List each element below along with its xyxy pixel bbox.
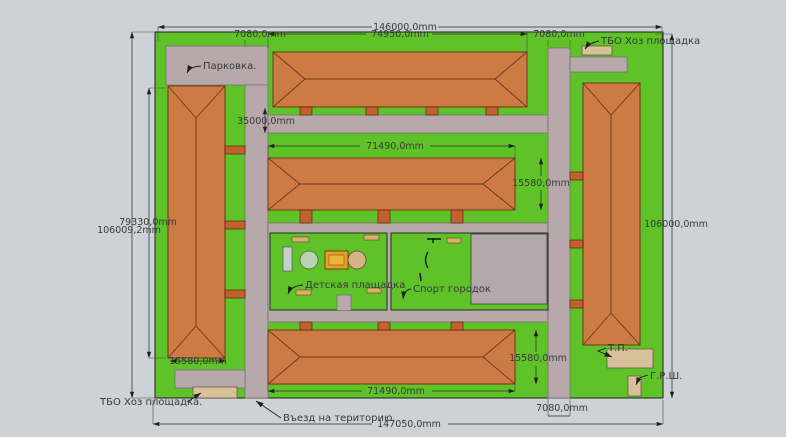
label-sports: Спорт городок [413, 284, 491, 295]
sand-circle [348, 251, 366, 269]
dim-mid-building-length: 71490,0mm [366, 141, 424, 152]
exercise-post [420, 273, 421, 281]
entrance-stub [300, 210, 312, 223]
bench [292, 237, 309, 242]
entrance-stub [570, 172, 583, 180]
dim-top-building-length: 74950,0mm [371, 29, 429, 40]
bottom-left-road-stub [175, 370, 245, 388]
entrance-stub [366, 107, 378, 115]
upper-cross-road [268, 115, 548, 133]
playground-block-notch [337, 295, 351, 311]
entrance-stub [300, 107, 312, 115]
label-parking: Парковка. [203, 61, 256, 72]
entrance-stub [486, 107, 498, 115]
entrance-stub [570, 300, 583, 308]
dim-road-top-right: 7080,0mm [533, 29, 585, 40]
building-right [583, 83, 640, 345]
dim-site-height-right: 106000,0mm [644, 219, 708, 230]
entrance-stub [426, 107, 438, 115]
entrance-stub [451, 322, 463, 330]
play-circle [300, 251, 318, 269]
bench [447, 238, 461, 243]
playground-block [270, 233, 387, 310]
dim-road-main: 35000,0mm [237, 116, 295, 127]
dim-bottom-building-length: 71490,0mm [367, 386, 425, 397]
entrance-stub [378, 210, 390, 223]
label-tbo-bottom: ТБО Хоз площадка. [99, 397, 202, 408]
entrance-stub [225, 146, 245, 154]
entrance-stub [378, 322, 390, 330]
entrance-stub [225, 290, 245, 298]
sandbox-inner [329, 255, 344, 265]
dim-road-top-left: 7080,0mm [234, 29, 286, 40]
building-bottom [268, 330, 515, 384]
building-top [273, 52, 527, 107]
label-playground: Детская плащадка [305, 280, 405, 291]
dim-site-height-left: 106009,2mm [97, 225, 161, 236]
entrance-stub [225, 221, 245, 229]
main-vertical-road [245, 85, 268, 398]
bench [364, 235, 379, 240]
right-vertical-road [548, 48, 570, 398]
dim-left-building-width: 15580,0mm [169, 356, 227, 367]
label-grsh: Г.Р.Ш. [650, 371, 682, 382]
entrance-stub [300, 322, 312, 330]
dim-mid-building-width: 15580,0mm [512, 178, 570, 189]
dim-bottom-building-width: 15580,0mm [509, 353, 567, 364]
dim-road-bottom-right: 7080,0mm [536, 403, 588, 414]
entrance-stub [451, 210, 463, 223]
play-panel [283, 247, 292, 271]
top-right-road-stub [570, 57, 627, 72]
entrance-stub [570, 240, 583, 248]
label-entrance: Въезд на територию. [283, 413, 396, 424]
site-plan-canvas: 146000,0mm 74950,0mm 7080,0mm 7080,0mm 3… [0, 0, 786, 437]
site-plan-drawing: 146000,0mm 74950,0mm 7080,0mm 7080,0mm 3… [0, 0, 786, 437]
building-middle [268, 158, 515, 210]
label-transformer: Т.П. [607, 343, 628, 354]
label-tbo-top: ТБО Хоз площадка [600, 36, 700, 47]
